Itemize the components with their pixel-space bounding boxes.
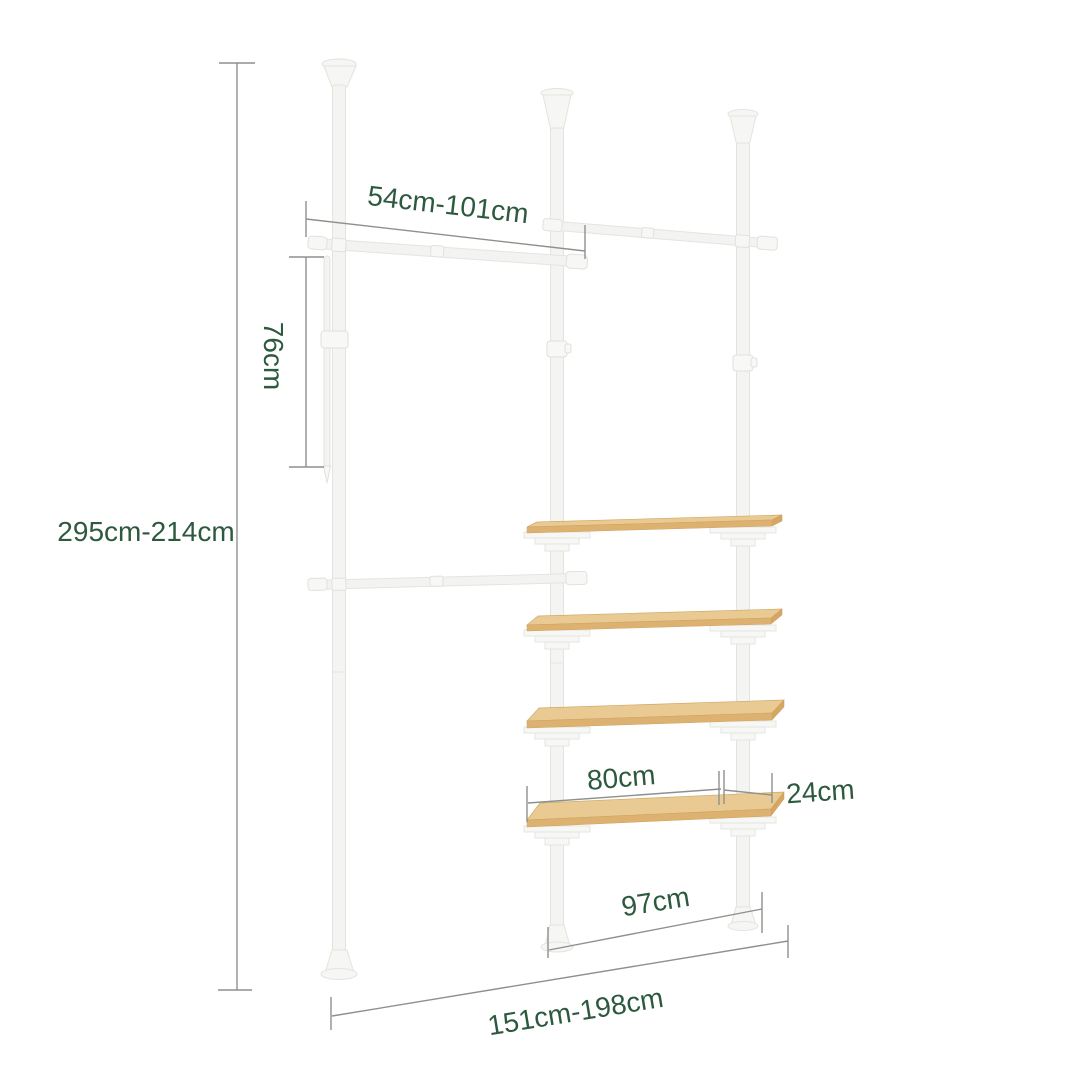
center-pole-lock-clamp xyxy=(547,341,567,357)
drop-rod-tip xyxy=(324,466,331,483)
center-pole-ceiling-flare xyxy=(543,95,571,131)
dimension-label-overall-width: 151cm-198cm xyxy=(485,982,665,1041)
top-rail-left-end-cap xyxy=(308,236,328,250)
drop-rod-clamp xyxy=(321,331,348,348)
top-rail-right-right-cap xyxy=(757,236,778,251)
shelf-2-bracket-right xyxy=(710,625,776,644)
left-pole-ceiling-flare xyxy=(324,66,356,87)
shelf-1-bracket-center xyxy=(524,532,590,551)
dimension-label-lower-span: 97cm xyxy=(619,881,691,922)
dimension-label-shelf-width: 80cm xyxy=(586,759,657,796)
shelf-2-bracket-center xyxy=(524,630,590,649)
product-diagram: 295cm-214cm 54cm-101cm 76cm 80cm 24cm 97… xyxy=(0,0,1080,1080)
drop-rod-tube xyxy=(324,256,330,468)
shelf-3-bracket-center xyxy=(524,727,590,746)
lower-rail-left-bar xyxy=(311,573,581,589)
shelf-3-bracket-right xyxy=(710,721,776,740)
dimension-overall-height: 295cm-214cm xyxy=(57,63,255,990)
dimension-label-rod-length: 76cm xyxy=(258,322,289,390)
lower-rail-left-pole-clamp xyxy=(332,578,346,590)
dimension-label-shelf-depth: 24cm xyxy=(785,774,855,810)
dimension-label-overall-height: 295cm-214cm xyxy=(57,516,234,547)
top-rail-right-pole-clamp xyxy=(735,235,750,248)
top-rail-left xyxy=(308,236,588,269)
lower-rail-left-end-cap xyxy=(308,578,327,590)
center-pole-lock-knob xyxy=(565,344,571,353)
lower-rail-left-mid-joint xyxy=(430,576,443,586)
top-rail-left-mid-joint xyxy=(430,245,444,257)
product-diagram-canvas: 295cm-214cm 54cm-101cm 76cm 80cm 24cm 97… xyxy=(0,0,1080,1080)
left-pole-tube xyxy=(333,85,346,953)
shelf-4-bracket-center xyxy=(524,826,590,845)
dimension-rod-length: 76cm xyxy=(258,257,324,467)
top-rail-right-mid-joint xyxy=(641,227,654,238)
lower-rail-left-right-cap xyxy=(566,571,587,585)
top-rail-left-bar xyxy=(311,238,583,267)
right-pole-ceiling-flare xyxy=(730,116,756,146)
right-pole-lock-clamp xyxy=(733,355,753,371)
right-pole-lock-knob xyxy=(751,358,757,367)
top-rail-left-pole-clamp xyxy=(331,238,346,252)
pole-clamps xyxy=(547,341,757,371)
right-pole-foot-disc xyxy=(728,922,758,931)
left-pole-foot-disc xyxy=(321,969,357,980)
top-rail-right-end-cap xyxy=(543,218,563,232)
dimension-lower-span: 97cm xyxy=(548,881,762,958)
shelf-1-bracket-right xyxy=(710,527,776,546)
shelf-4-bracket-right xyxy=(710,817,776,836)
lower-rail-left xyxy=(308,571,587,591)
left-pole xyxy=(321,59,357,980)
dimension-label-rail-width: 54cm-101cm xyxy=(366,180,530,229)
